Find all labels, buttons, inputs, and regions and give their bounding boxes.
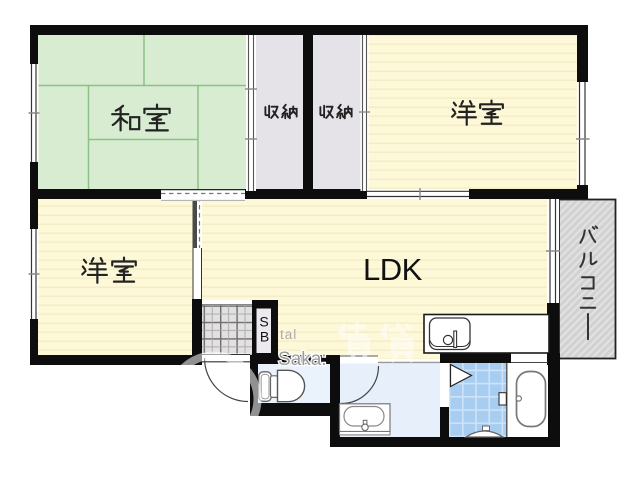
svg-text:B: B [260,329,269,345]
svg-text:S: S [259,314,268,330]
svg-text:tal: tal [280,327,297,342]
svg-text:LDK: LDK [363,252,423,287]
svg-text:Saka:: Saka: [278,349,327,370]
